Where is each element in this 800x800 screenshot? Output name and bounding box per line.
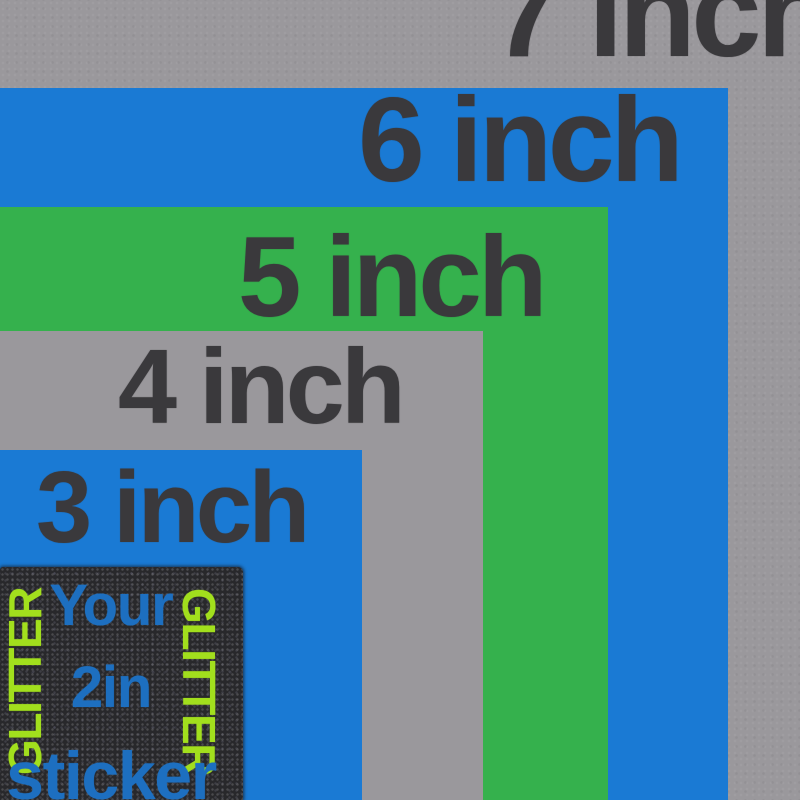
sticker-line-your: Your [0, 577, 222, 635]
sticker-line-2in: 2in [0, 659, 222, 717]
size-label-6-inch: 6 inch [358, 80, 680, 200]
glitter-sticker-2-inch: GLITTER GLITTER Your 2in sticker [0, 567, 243, 800]
size-label-7-inch: 7 inch [492, 0, 800, 76]
size-label-5-inch: 5 inch [238, 221, 543, 335]
sticker-line-sticker: sticker [0, 742, 222, 800]
size-label-3-inch: 3 inch [36, 458, 307, 559]
sticker-size-chart: 7 inch 6 inch 5 inch 4 inch 3 inch GLITT… [0, 0, 800, 800]
size-label-4-inch: 4 inch [118, 334, 402, 440]
